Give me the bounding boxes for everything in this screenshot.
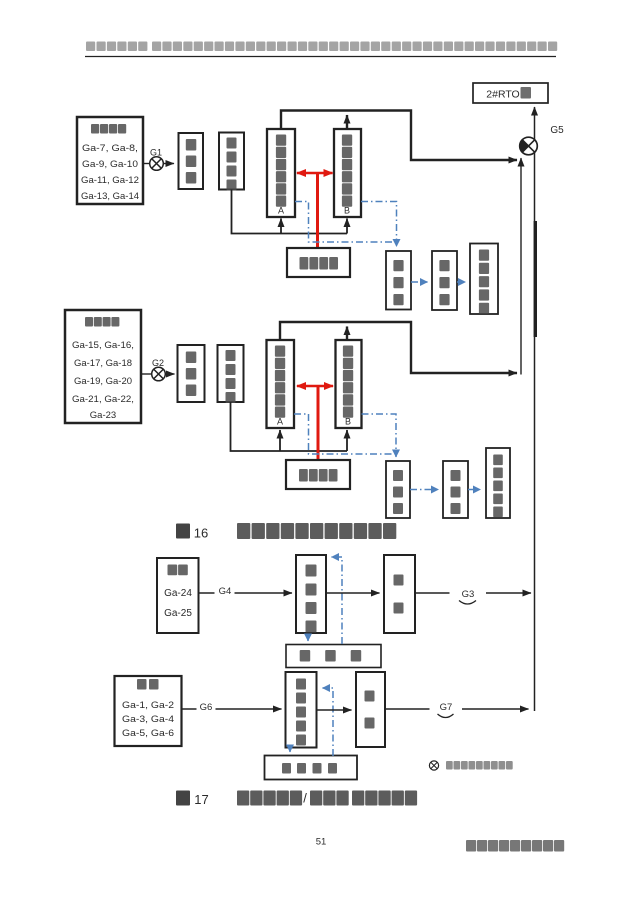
svg-text:16: 16 — [194, 526, 208, 541]
svg-text:Ga-11, Ga-12: Ga-11, Ga-12 — [81, 175, 139, 186]
svg-text:Ga-1, Ga-2: Ga-1, Ga-2 — [122, 700, 174, 710]
svg-text:B: B — [344, 206, 350, 216]
svg-text:Ga-25: Ga-25 — [164, 608, 192, 619]
svg-text:A: A — [278, 206, 284, 216]
svg-text:G2: G2 — [152, 358, 164, 368]
svg-text:Ga-17, Ga-18: Ga-17, Ga-18 — [74, 358, 132, 369]
svg-text:17: 17 — [194, 792, 208, 807]
svg-text:G4: G4 — [219, 586, 232, 597]
svg-text:Ga-21, Ga-22,: Ga-21, Ga-22, — [72, 394, 134, 405]
svg-text:A: A — [277, 417, 283, 427]
svg-text:Ga-13, Ga-14: Ga-13, Ga-14 — [81, 191, 139, 202]
svg-text:G3: G3 — [462, 589, 475, 600]
svg-text:Ga-23: Ga-23 — [90, 410, 116, 421]
svg-text:Ga-19, Ga-20: Ga-19, Ga-20 — [74, 376, 132, 387]
svg-text:G5: G5 — [550, 125, 564, 136]
svg-text:Ga-9, Ga-10: Ga-9, Ga-10 — [82, 159, 138, 170]
svg-text:2#RTO: 2#RTO — [486, 89, 519, 101]
svg-text:B: B — [345, 417, 351, 427]
svg-text:Ga-5, Ga-6: Ga-5, Ga-6 — [122, 728, 174, 738]
svg-text:Ga-3, Ga-4: Ga-3, Ga-4 — [122, 714, 174, 724]
svg-text:/: / — [303, 791, 307, 806]
svg-text:Ga-24: Ga-24 — [164, 588, 192, 599]
svg-text:G7: G7 — [440, 702, 453, 713]
svg-text:G1: G1 — [150, 148, 162, 158]
svg-text:51: 51 — [316, 837, 327, 848]
svg-text:G6: G6 — [200, 702, 213, 713]
svg-text:Ga-15, Ga-16,: Ga-15, Ga-16, — [72, 340, 134, 351]
svg-text:Ga-7, Ga-8,: Ga-7, Ga-8, — [82, 143, 138, 154]
